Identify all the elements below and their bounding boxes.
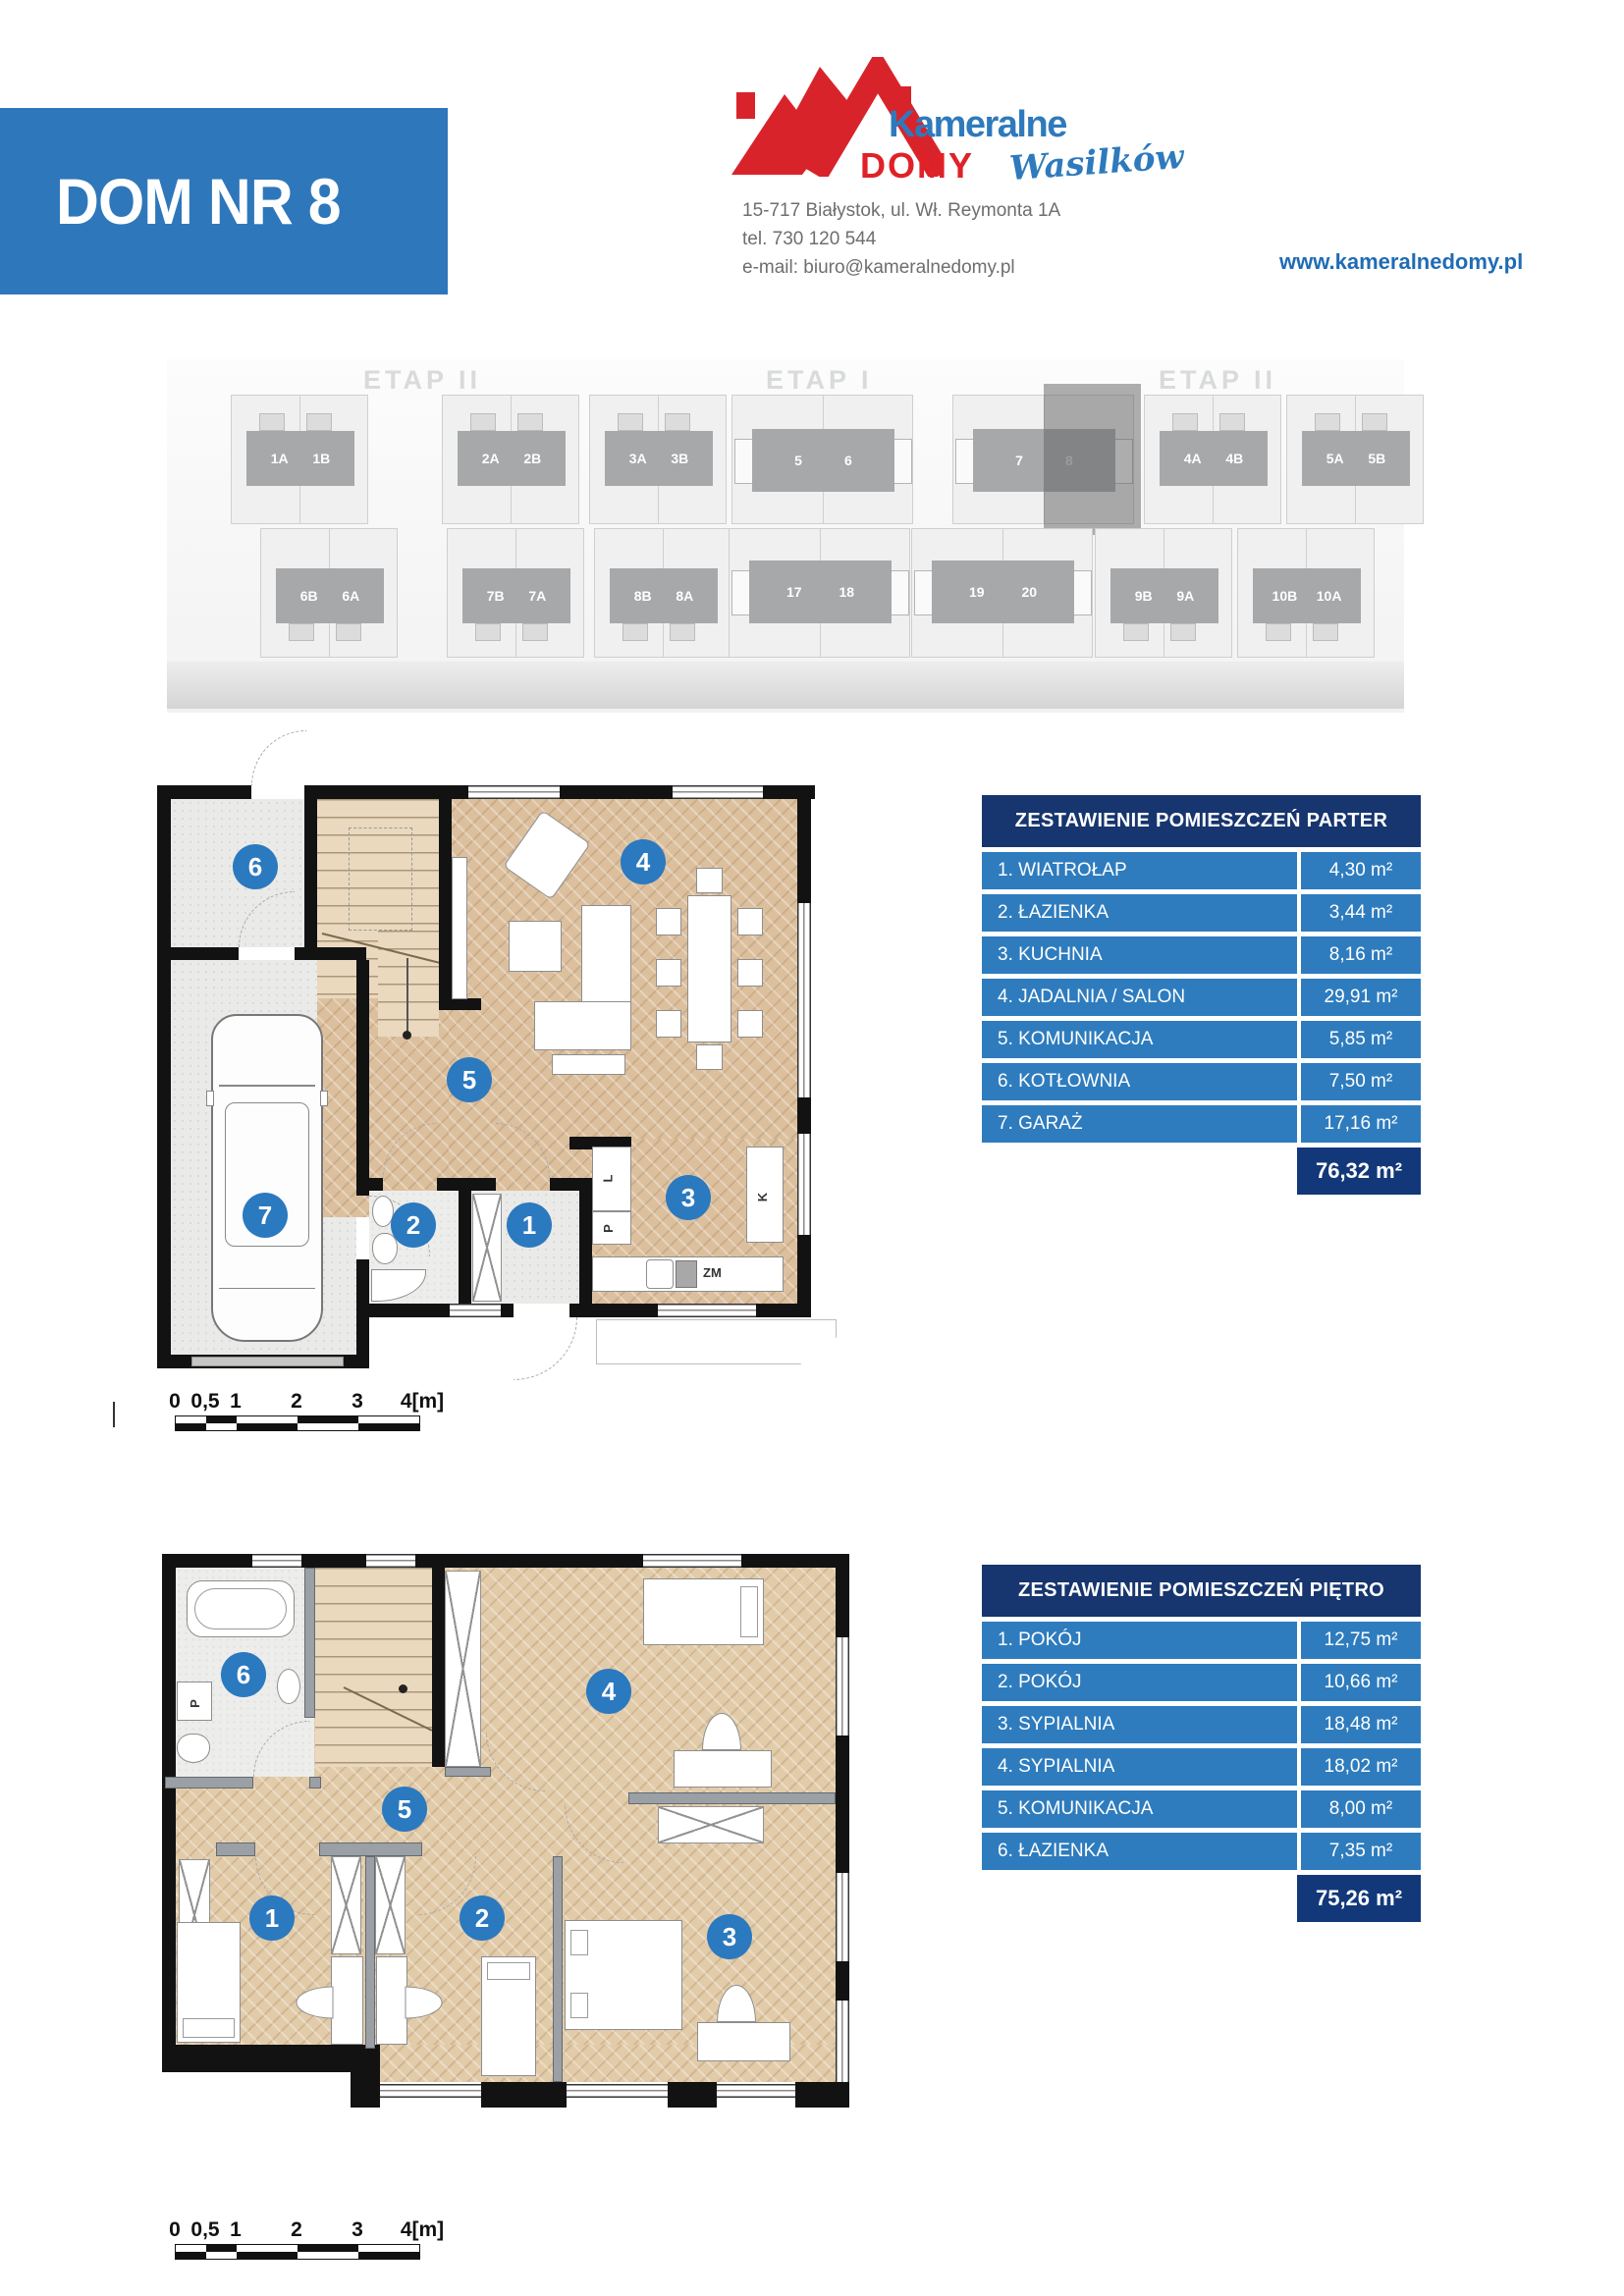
address-line: 15-717 Białystok, ul. Wł. Reymonta 1A	[742, 196, 1060, 225]
plot-group: 1920	[911, 528, 1093, 658]
plot-group: 10B10A	[1237, 528, 1375, 658]
pillow	[183, 2018, 235, 2038]
wall	[836, 1735, 849, 1873]
window	[450, 1304, 501, 1317]
room-badge-garaz: 7	[243, 1193, 288, 1238]
house-4A4B: 4A4B	[1160, 431, 1268, 486]
table-row: 3. KUCHNIA8,16 m²	[982, 936, 1421, 974]
garage-gate	[191, 1357, 344, 1366]
pillow	[570, 1930, 588, 1955]
partition-wall	[304, 1568, 315, 1718]
room-badge-komunikacja-pietro: 5	[382, 1787, 427, 1832]
wall	[481, 2082, 567, 2108]
table-pietro-total: 75,26 m²	[1297, 1875, 1421, 1922]
room-badge-kuchnia: 3	[666, 1175, 711, 1220]
wall	[171, 947, 239, 960]
coffee-table	[509, 921, 562, 972]
kitchen-label-L: L	[600, 1175, 615, 1183]
room-badge-wiatrolap: 1	[507, 1202, 552, 1248]
sofa-chaise	[534, 1001, 631, 1050]
window	[836, 1637, 849, 1735]
house-5A5B: 5A5B	[1302, 431, 1410, 486]
wall	[415, 1554, 643, 1568]
sink-pietro	[277, 1669, 300, 1704]
table-total-row: 75,26 m²	[982, 1875, 1421, 1922]
kitchen-label-ZM: ZM	[703, 1265, 722, 1280]
phone-line: tel. 730 120 544	[742, 225, 1060, 253]
dining-chair	[737, 959, 763, 987]
partition-wall	[628, 1792, 836, 1804]
tv-cabinet	[452, 857, 467, 999]
desk-room3	[697, 2022, 790, 2061]
car	[211, 1014, 323, 1342]
wall	[369, 1304, 450, 1317]
table-row: 1. POKÓJ12,75 m²	[982, 1622, 1421, 1659]
wardrobe	[472, 1194, 502, 1302]
wall	[356, 1259, 369, 1368]
plot-group: 3A3B	[589, 395, 727, 524]
logo-chimney	[736, 92, 755, 119]
kitchen-label-P: P	[601, 1224, 616, 1233]
partition-wall	[319, 1842, 422, 1856]
room-badge-lazienka: 2	[391, 1202, 436, 1248]
brand-name-bottom: DOMY	[860, 145, 974, 187]
kitchen-label-K: K	[755, 1193, 770, 1201]
plot-group: 2A2B	[442, 395, 579, 524]
house-6B6A: 6B6A	[276, 568, 384, 623]
house-17-18: 1718	[749, 561, 892, 623]
etap-label-center: ETAP I	[766, 365, 873, 396]
stairs-arrow	[406, 958, 408, 1035]
window	[658, 1304, 756, 1317]
wall	[304, 799, 317, 960]
etap-label-right: ETAP II	[1159, 365, 1276, 396]
desk-room2	[376, 1956, 407, 2045]
bathtub-inner	[194, 1588, 287, 1629]
wall	[439, 998, 481, 1010]
window	[836, 1873, 849, 1961]
partition-wall	[445, 1767, 491, 1777]
plot-group: 6B6A	[260, 528, 398, 658]
room-badge-lazienka-pietro: 6	[221, 1652, 266, 1697]
desk-room1	[331, 1956, 363, 2045]
wall	[432, 1554, 445, 1767]
partition-wall	[309, 1777, 321, 1789]
pillow	[487, 1962, 530, 1980]
wall	[756, 1304, 811, 1317]
wall	[795, 2082, 849, 2108]
toilet-pietro	[177, 1734, 210, 1763]
window	[567, 2084, 668, 2098]
washer-label: P	[188, 1699, 202, 1708]
dining-chair	[737, 908, 763, 935]
table-row: 5. KOMUNIKACJA5,85 m²	[982, 1021, 1421, 1058]
table-total-row: 76,32 m²	[982, 1148, 1421, 1195]
scale-tick	[113, 1402, 115, 1427]
window	[797, 903, 811, 1097]
stairs-arrow-dot	[403, 1031, 411, 1040]
wall	[162, 2045, 376, 2072]
dining-chair	[656, 1010, 681, 1038]
table-row: 6. KOTŁOWNIA7,50 m²	[982, 1063, 1421, 1100]
sofa-ottoman	[552, 1054, 625, 1075]
pillow	[570, 1993, 588, 2018]
partition-wall	[216, 1842, 255, 1856]
wall	[295, 947, 366, 960]
wall	[437, 1178, 496, 1191]
room-badge-salon: 4	[621, 839, 666, 884]
pillow	[740, 1586, 758, 1637]
plot-group: 7B7A	[447, 528, 584, 658]
window	[717, 2084, 795, 2098]
plot-group: 1A1B	[231, 395, 368, 524]
wall	[351, 2045, 380, 2108]
table-row: 2. POKÓJ10,66 m²	[982, 1664, 1421, 1701]
highlight-plot-8	[1044, 384, 1142, 535]
table-row: 4. JADALNIA / SALON29,91 m²	[982, 979, 1421, 1016]
room-badge-sypialnia3: 3	[707, 1914, 752, 1959]
table-row: 5. KOMUNIKACJA8,00 m²	[982, 1790, 1421, 1828]
plot-group: 9B9A	[1095, 528, 1232, 658]
room-badge-kotlownia: 6	[233, 844, 278, 889]
floor-plan-parter: L P K ZM 6 4 5 7 2 1 3 0 0,5 1 2 3 4[m]	[108, 774, 874, 1549]
table-row: 3. SYPIALNIA18,48 m²	[982, 1706, 1421, 1743]
closet	[331, 1856, 361, 1954]
partition-wall	[365, 1856, 375, 2049]
table-row: 2. ŁAZIENKA3,44 m²	[982, 894, 1421, 932]
table-pietro-title: ZESTAWIENIE POMIESZCZEŃ PIĘTRO	[982, 1565, 1421, 1617]
brand-name-top: Kameralne	[889, 104, 1066, 146]
wall	[439, 785, 452, 998]
door-arc-porch	[251, 730, 306, 785]
table-parter-total: 76,32 m²	[1297, 1148, 1421, 1195]
plot-group: 5A5B	[1286, 395, 1424, 524]
wall	[162, 1554, 176, 2072]
wall	[741, 1554, 849, 1568]
table-pietro: ZESTAWIENIE POMIESZCZEŃ PIĘTRO 1. POKÓJ1…	[982, 1565, 1421, 1922]
plot-group: 4A4B	[1144, 395, 1281, 524]
stairs-upper-flight	[349, 828, 412, 931]
window	[643, 1554, 741, 1568]
window	[673, 785, 763, 799]
window	[252, 1554, 301, 1568]
etap-label-left: ETAP II	[363, 365, 481, 396]
house-9B9A: 9B9A	[1110, 568, 1218, 623]
plot-group-7-8: 7 8	[952, 395, 1134, 524]
site-plan: ETAP II ETAP I ETAP II 1A1B 2A2B 3A3B	[167, 359, 1404, 713]
dining-chair	[696, 868, 723, 893]
stairs-dot	[399, 1684, 407, 1693]
house-7B7A: 7B7A	[462, 568, 570, 623]
room-badge-pokoj1: 1	[249, 1896, 295, 1941]
house-5-6: 56	[752, 429, 894, 492]
wall	[797, 785, 811, 903]
plot-group: 8B8A	[594, 528, 731, 658]
wall	[301, 1554, 366, 1568]
dishwasher	[676, 1260, 697, 1288]
wall	[459, 1191, 471, 1304]
wall	[550, 1178, 592, 1191]
dining-table	[687, 895, 731, 1042]
plot-group: 1718	[729, 528, 910, 658]
wardrobe-room3	[658, 1806, 764, 1843]
window	[366, 1554, 415, 1568]
window	[797, 1134, 811, 1235]
wall	[157, 785, 251, 799]
stairs-pietro-floor	[315, 1568, 432, 1767]
wall	[579, 1191, 592, 1317]
terrace-outline	[596, 1319, 837, 1364]
wall	[797, 1097, 811, 1134]
desk-room4	[674, 1750, 772, 1788]
scale-bar-parter: 0 0,5 1 2 3 4[m]	[175, 1390, 430, 1431]
stairs-lower-flight	[378, 931, 439, 1037]
room-badge-komunikacja: 5	[447, 1057, 492, 1102]
partition-wall	[553, 1856, 563, 2082]
wall	[157, 785, 171, 1368]
house-10B10A: 10B10A	[1253, 568, 1361, 623]
title-banner: DOM NR 8	[0, 108, 448, 294]
room-badge-pokoj2: 2	[460, 1896, 505, 1941]
road	[167, 662, 1404, 709]
wall	[560, 785, 673, 799]
dining-chair	[737, 1010, 763, 1038]
house-19-20: 1920	[932, 561, 1074, 623]
house-2A2B: 2A2B	[458, 431, 566, 486]
house-1A1B: 1A1B	[246, 431, 354, 486]
house-8B8A: 8B8A	[610, 568, 718, 623]
wall	[836, 1961, 849, 2001]
table-parter: ZESTAWIENIE POMIESZCZEŃ PARTER 1. WIATRO…	[982, 795, 1421, 1195]
wardrobe-tall	[445, 1571, 481, 1767]
kitchen-sink	[646, 1259, 674, 1289]
table-parter-title: ZESTAWIENIE POMIESZCZEŃ PARTER	[982, 795, 1421, 847]
house-3A3B: 3A3B	[605, 431, 713, 486]
wall	[668, 2082, 717, 2108]
table-row: 1. WIATROŁAP4,30 m²	[982, 852, 1421, 889]
page-title: DOM NR 8	[0, 164, 341, 239]
wall	[356, 1178, 383, 1191]
dining-chair	[656, 908, 681, 935]
page: DOM NR 8 Kameralne DOMY Wasilków 15-717 …	[0, 0, 1624, 2296]
wall	[501, 1304, 514, 1317]
plot-group: 56	[731, 395, 913, 524]
closet	[375, 1856, 406, 1954]
partition-wall	[165, 1777, 253, 1789]
table-row: 6. ŁAZIENKA7,35 m²	[982, 1833, 1421, 1870]
room-badge-sypialnia4: 4	[586, 1669, 631, 1714]
wall	[836, 1554, 849, 1637]
table-row: 4. SYPIALNIA18,02 m²	[982, 1748, 1421, 1786]
scale-bar-pietro: 0 0,5 1 2 3 4[m]	[175, 2218, 430, 2260]
dining-chair	[656, 959, 681, 987]
window	[836, 2001, 849, 2089]
window	[380, 2084, 481, 2098]
dining-chair	[696, 1044, 723, 1070]
table-row: 7. GARAŻ17,16 m²	[982, 1105, 1421, 1143]
floor-plan-pietro: P 6 5 4 1 2 3	[108, 1549, 874, 2296]
email-line: e-mail: biuro@kameralnedomy.pl	[742, 253, 1060, 282]
website-link: www.kameralnedomy.pl	[1279, 249, 1523, 275]
company-address: 15-717 Białystok, ul. Wł. Reymonta 1A te…	[742, 196, 1060, 282]
window	[468, 785, 560, 799]
door-arc-entrance	[514, 1317, 577, 1380]
wall	[356, 960, 369, 1196]
